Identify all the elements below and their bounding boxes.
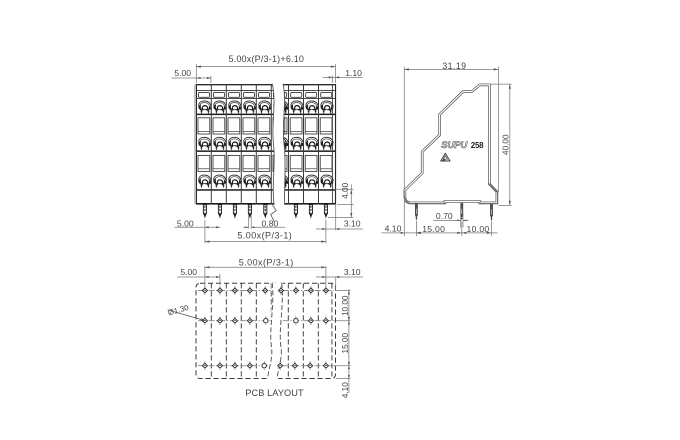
- svg-text:PCB LAYOUT: PCB LAYOUT: [245, 388, 304, 398]
- svg-text:5.00: 5.00: [177, 218, 194, 228]
- svg-text:0.70: 0.70: [436, 211, 453, 221]
- svg-text:3.10: 3.10: [344, 267, 361, 277]
- svg-text:15.00: 15.00: [422, 224, 445, 234]
- svg-text:5.00: 5.00: [174, 68, 191, 78]
- svg-text:5.00: 5.00: [180, 267, 197, 277]
- svg-text:40.00: 40.00: [501, 134, 510, 155]
- svg-text:10.00: 10.00: [341, 295, 350, 316]
- svg-text:3.10: 3.10: [344, 218, 361, 228]
- svg-text:4.10: 4.10: [385, 224, 402, 234]
- svg-text:SUPU: SUPU: [441, 139, 467, 150]
- svg-text:5.00x(P/3-1): 5.00x(P/3-1): [239, 257, 294, 267]
- svg-text:10.00: 10.00: [466, 224, 489, 234]
- svg-text:5.00x(P/3-1)+6.10: 5.00x(P/3-1)+6.10: [228, 54, 304, 64]
- svg-text:1.10: 1.10: [345, 68, 362, 78]
- svg-text:4.10: 4.10: [341, 382, 350, 398]
- svg-text:4.00: 4.00: [341, 182, 350, 198]
- svg-text:258: 258: [471, 141, 484, 150]
- svg-text:0.80: 0.80: [262, 218, 279, 228]
- svg-text:15.00: 15.00: [341, 333, 350, 354]
- svg-text:5.00x(P/3-1): 5.00x(P/3-1): [237, 231, 292, 241]
